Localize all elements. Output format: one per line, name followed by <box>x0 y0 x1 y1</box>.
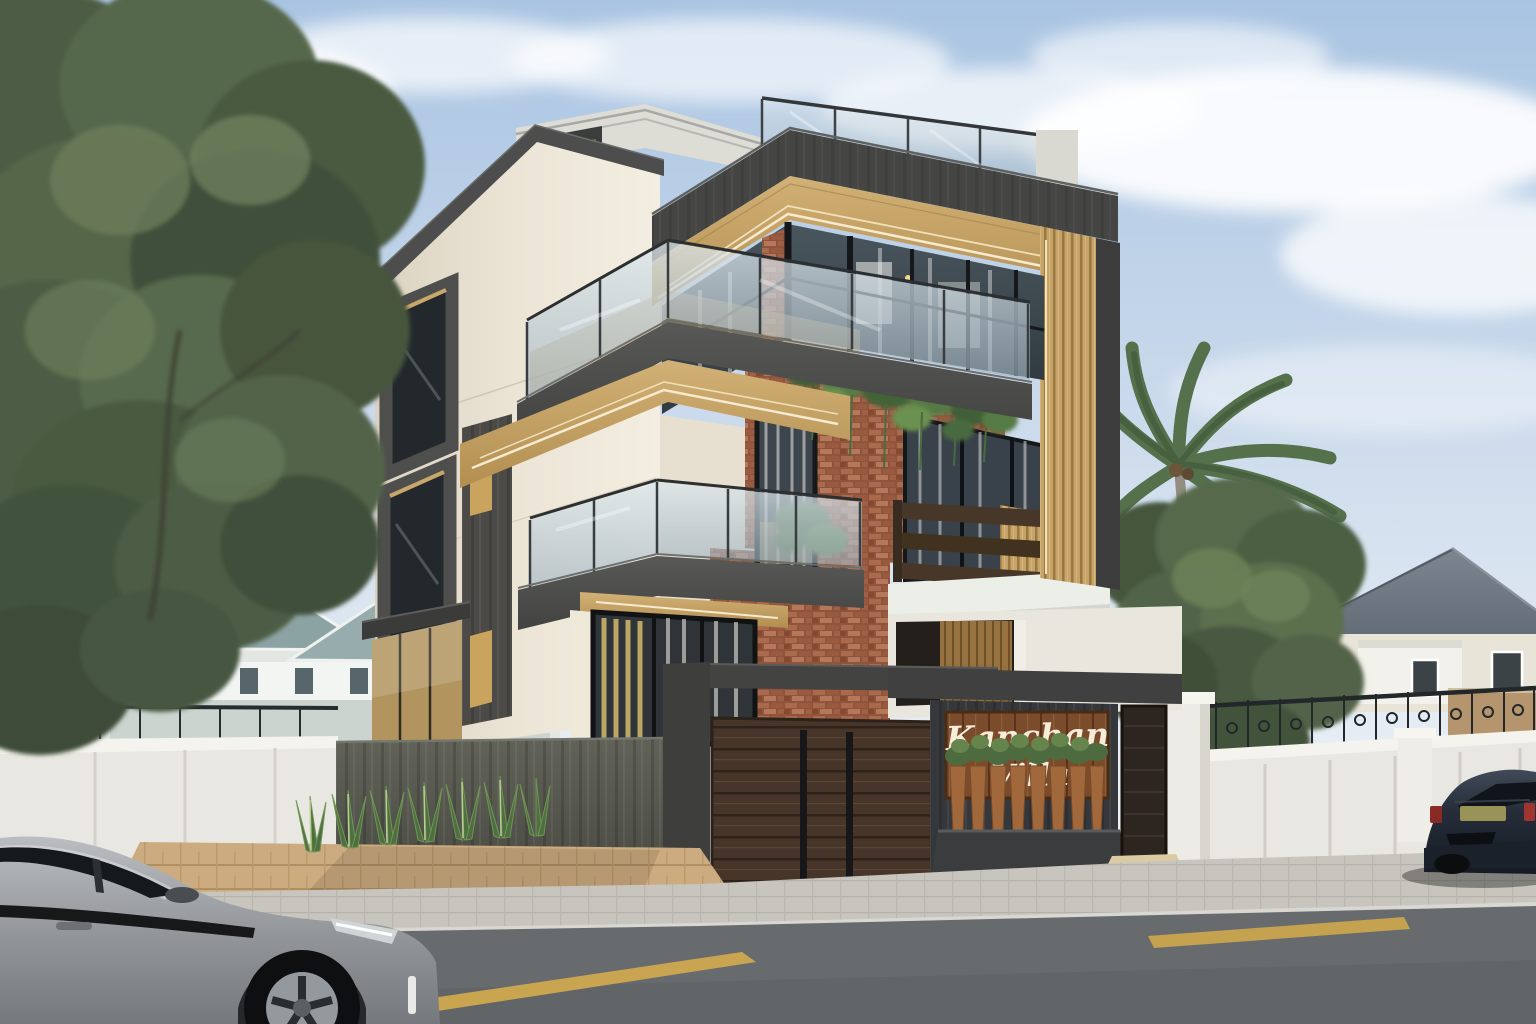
license-plate <box>1460 806 1506 821</box>
door-handle <box>56 922 92 930</box>
entrance-porch <box>362 602 470 748</box>
render-canvas: Kanchan Villa <box>0 0 1536 1024</box>
taillight <box>1430 806 1442 823</box>
gate-handle <box>800 730 807 880</box>
architectural-render: Kanchan Villa <box>0 0 1536 1024</box>
slat-column <box>1040 226 1120 590</box>
side-mirror <box>165 887 199 903</box>
villa: Kanchan Villa <box>336 98 1184 900</box>
slot-window-lower <box>470 630 492 708</box>
gate-panel <box>712 718 938 896</box>
gate-handle <box>846 732 853 882</box>
drl-light <box>408 976 416 1014</box>
taillight <box>1524 803 1535 821</box>
